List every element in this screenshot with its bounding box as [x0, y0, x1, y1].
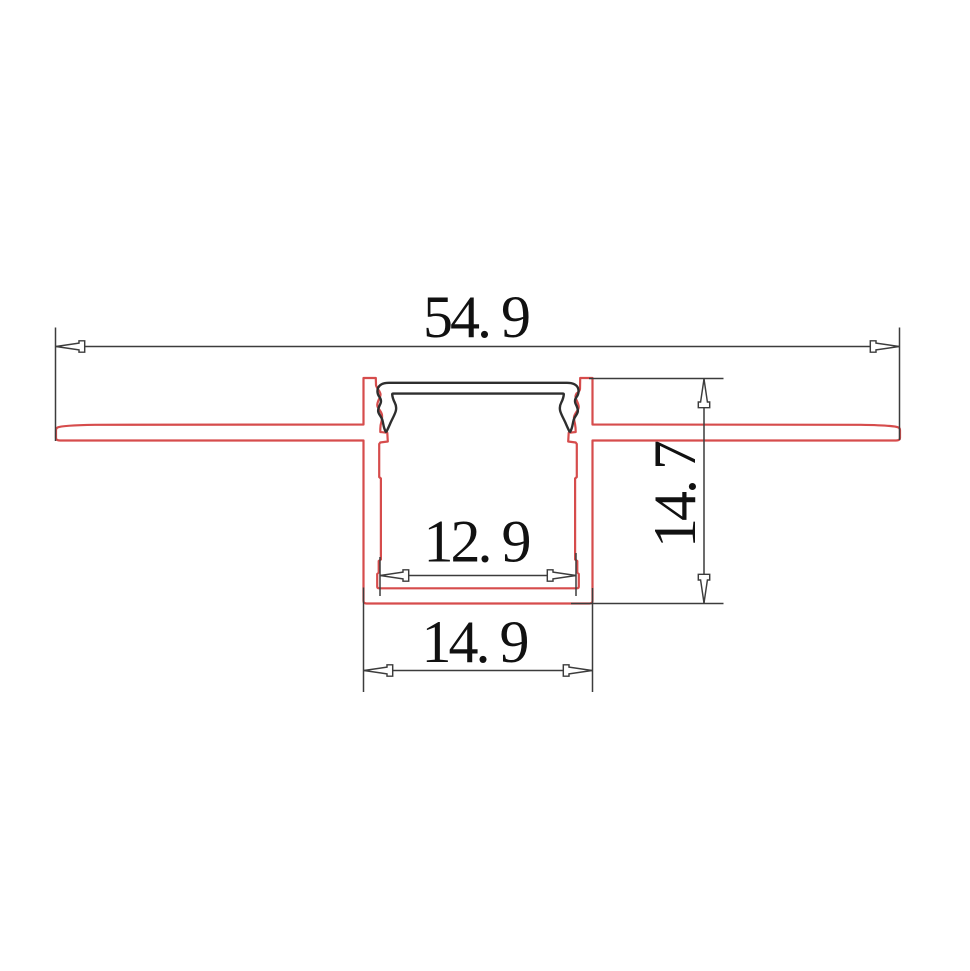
- svg-text:54. 9: 54. 9: [423, 284, 529, 350]
- svg-text:12. 9: 12. 9: [424, 509, 530, 575]
- svg-text:14. 7: 14. 7: [642, 441, 708, 548]
- svg-text:14. 9: 14. 9: [422, 609, 528, 675]
